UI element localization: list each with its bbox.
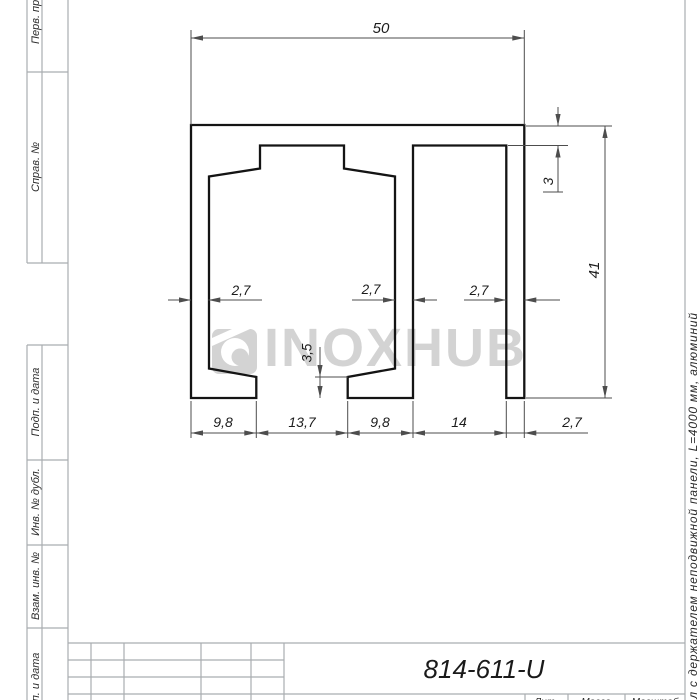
drawing-designation: 814-611-U <box>424 654 545 684</box>
sidebar-label-perv-primen: Перв. примен. <box>30 0 42 44</box>
dim-label-bottom-4: 14 <box>451 414 467 430</box>
watermark: INOXHUB <box>212 318 527 378</box>
title-block-scale-label: Масштаб <box>632 696 679 700</box>
dim-label-bottom-3: 9,8 <box>370 414 390 430</box>
dim-label-width-top: 50 <box>373 20 390 37</box>
dim-label-wall-thickness-top: 3 <box>540 177 556 185</box>
margin-note: ал с держателем неподвижной панели, L=40… <box>686 312 700 700</box>
sidebar-label-inv-no-dubl: Инв. № дубл. <box>30 468 42 536</box>
dim-label-bottom-2: 13,7 <box>288 414 316 430</box>
dim-label-height-right: 41 <box>586 262 603 279</box>
watermark-logo-pupil <box>232 349 249 366</box>
sidebar-labels: Перв. примен. Справ. № Подп. и дата Инв.… <box>30 0 42 700</box>
drawing-sheet: INOXHUB 50 3 41 2,7 2,7 2,7 3,5 9,8 13,7… <box>0 0 700 700</box>
sidebar-label-sprav-no: Справ. № <box>30 142 42 192</box>
dim-label-wall-middle: 2,7 <box>361 282 381 297</box>
title-block: 814-611-U Лит. Масса Масштаб <box>424 654 679 700</box>
dim-label-bottom-1: 9,8 <box>213 414 233 430</box>
title-block-grid <box>68 643 685 700</box>
dim-label-wall-left: 2,7 <box>231 283 251 298</box>
drawing-canvas: INOXHUB 50 3 41 2,7 2,7 2,7 3,5 9,8 13,7… <box>0 0 700 700</box>
sidebar-label-podp-i-data-1: Подп. и дата <box>30 368 42 437</box>
dim-label-step-height: 3,5 <box>300 343 315 362</box>
sidebar-label-vzam-inv-no: Взам. инв. № <box>30 552 42 620</box>
dim-label-bottom-5: 2,7 <box>561 414 583 430</box>
sidebar-label-podp-i-data-2: Подп. и дата <box>30 653 42 700</box>
dim-label-wall-right: 2,7 <box>469 283 489 298</box>
